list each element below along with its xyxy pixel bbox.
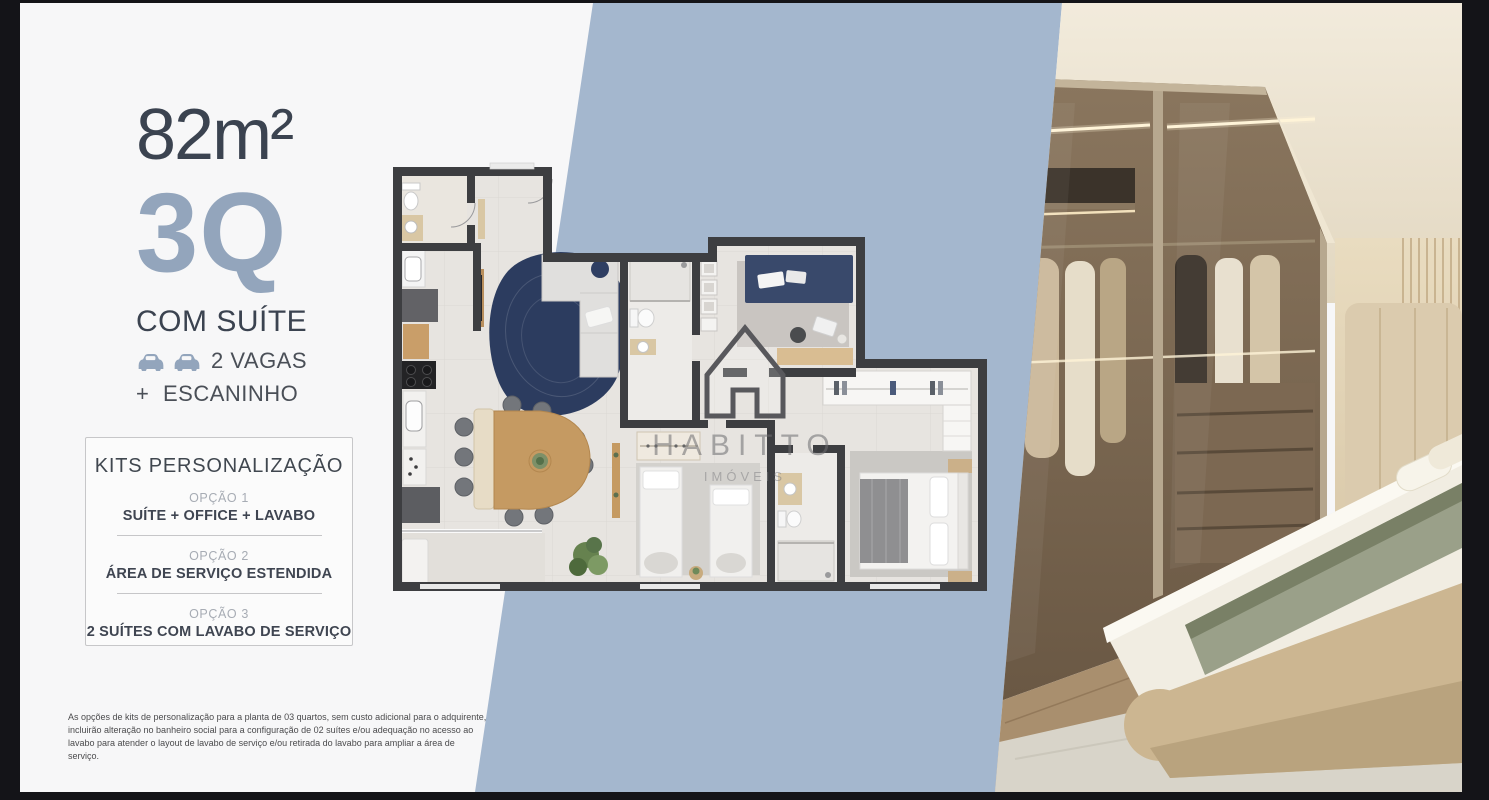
office-desk xyxy=(777,348,853,365)
unit-area: 82m² xyxy=(136,99,307,171)
watermark-subtitle: IMÓVEIS xyxy=(704,469,786,484)
balcony xyxy=(402,539,428,585)
divider xyxy=(117,535,322,536)
screenshot-root: { "unit": { "area": "82m²", "type": "3Q"… xyxy=(0,0,1489,800)
divider xyxy=(117,593,322,594)
kits-box: KITS PERSONALIZAÇÃO OPÇÃO 1 SUÍTE + OFFI… xyxy=(85,437,353,646)
car-icon xyxy=(136,351,166,371)
kit-option-value: ÁREA DE SERVIÇO ESTENDIDA xyxy=(86,566,352,582)
disclaimer-text: As opções de kits de personalização para… xyxy=(68,711,488,763)
kits-title: KITS PERSONALIZAÇÃO xyxy=(86,455,352,478)
escaninho-row: +ESCANINHO xyxy=(136,381,307,407)
parking-label: 2 VAGAS xyxy=(211,348,307,374)
parking-row: 2 VAGAS xyxy=(136,348,307,374)
unit-suite-label: COM SUÍTE xyxy=(136,305,307,339)
suite xyxy=(860,459,972,583)
watermark-brand: HABITTO xyxy=(652,429,837,462)
kit-option-label: OPÇÃO 1 xyxy=(86,491,352,505)
escaninho-label: ESCANINHO xyxy=(163,381,298,406)
kit-option-label: OPÇÃO 2 xyxy=(86,549,352,563)
kit-option-value: 2 SUÍTES COM LAVABO DE SERVIÇO xyxy=(86,624,352,640)
unit-type: 3Q xyxy=(136,177,307,289)
floorplan: HABITTO IMÓVEIS xyxy=(390,143,995,603)
unit-headline: 82m² 3Q COM SUÍTE 2 VAGAS +ESCANINHO xyxy=(136,99,307,407)
kit-option-label: OPÇÃO 3 xyxy=(86,607,352,621)
slide-canvas: 82m² 3Q COM SUÍTE 2 VAGAS +ESCANINHO KIT… xyxy=(20,3,1462,792)
bedroom-photo xyxy=(995,3,1462,792)
bedroom-photo-art xyxy=(995,3,1462,792)
kit-option-value: SUÍTE + OFFICE + LAVABO xyxy=(86,508,352,524)
plus-sign: + xyxy=(136,381,150,407)
parking-icons xyxy=(136,351,202,371)
car-icon xyxy=(172,351,202,371)
